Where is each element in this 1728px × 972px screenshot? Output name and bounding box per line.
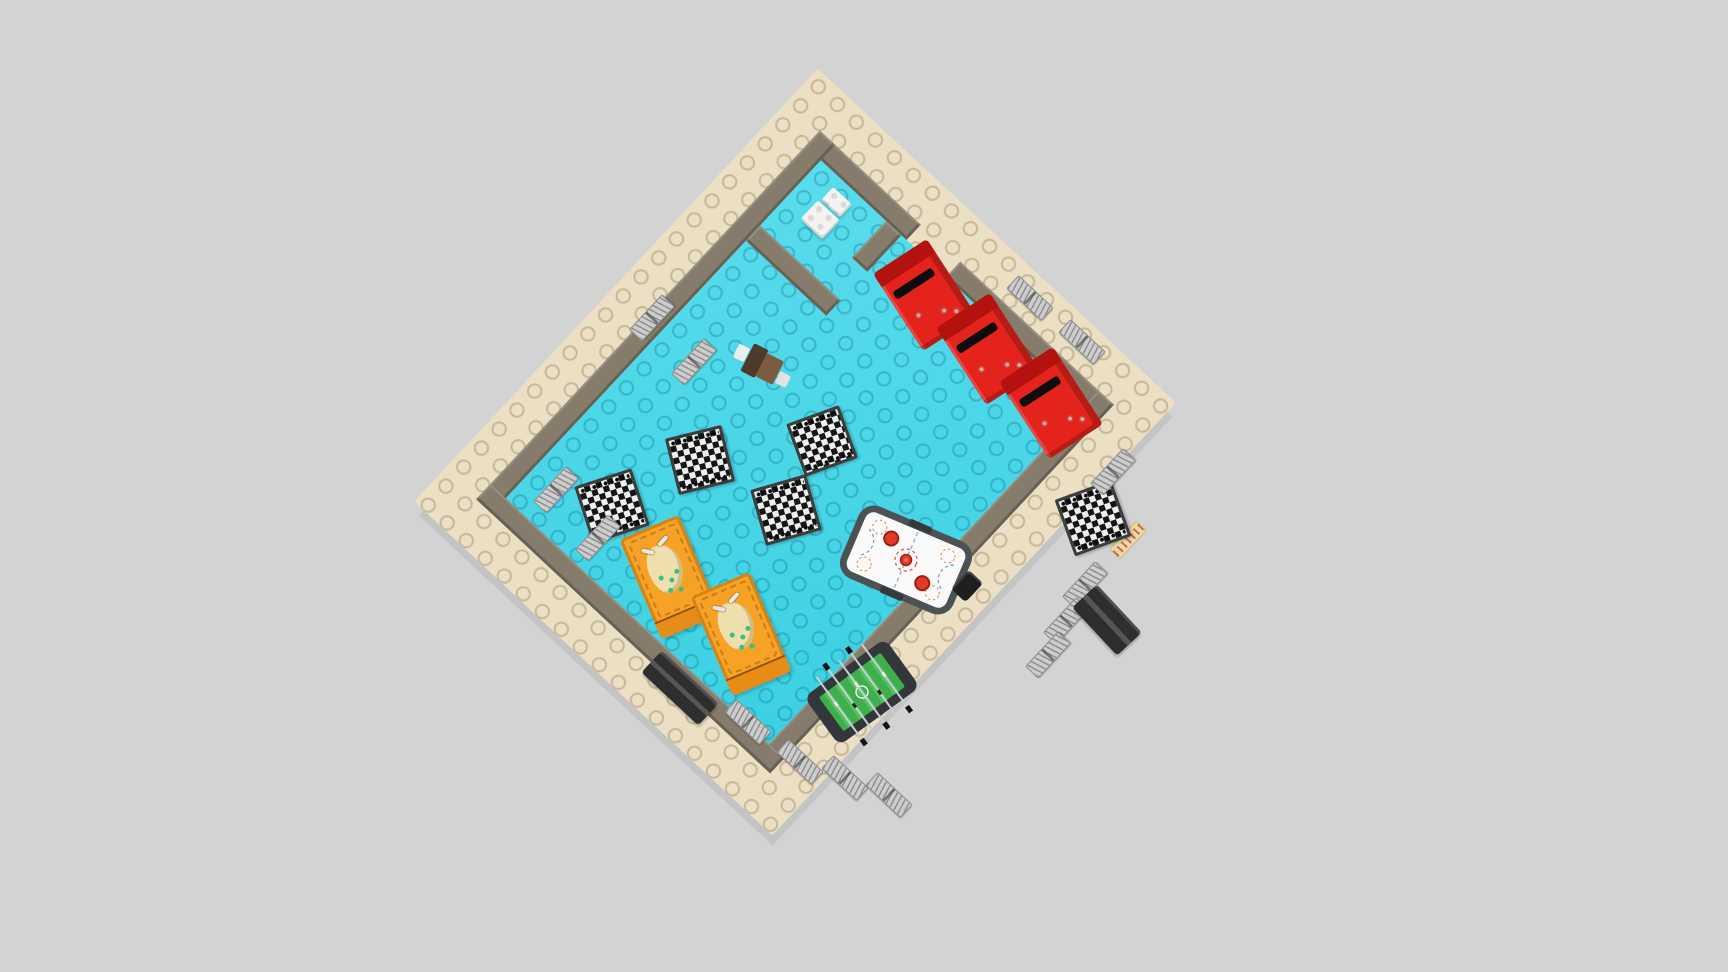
wall-poster <box>865 772 912 818</box>
render-viewport[interactable] <box>0 0 1728 972</box>
room-floor <box>506 160 1084 743</box>
wall-poster <box>821 755 868 801</box>
lego-baseplate <box>414 68 1176 835</box>
wall-poster <box>1025 631 1071 678</box>
